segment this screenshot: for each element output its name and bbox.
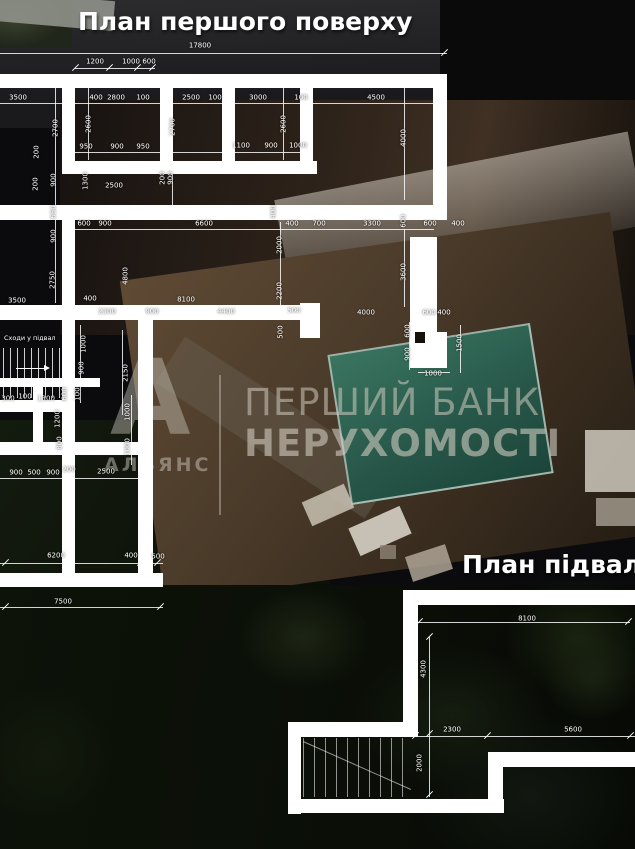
wall-segment: [410, 237, 437, 332]
sofa-photo: [596, 498, 635, 526]
dimension-label: 1100: [232, 143, 250, 150]
wall-segment: [300, 74, 313, 174]
dimension-label: 100: [18, 394, 31, 401]
dimension-label: 4000: [357, 310, 375, 317]
dimension-label: 800: [57, 436, 64, 449]
wall-segment: [433, 74, 447, 220]
dimension-label: 400: [83, 296, 96, 303]
wall-segment: [290, 722, 418, 737]
dim-line: [75, 152, 300, 153]
dimension-label: 2200: [277, 282, 284, 300]
dimension-label: 1200: [86, 59, 104, 66]
dimension-label: 200: [33, 177, 40, 190]
dimension-label: 2500: [182, 95, 200, 102]
dimension-label: 900: [145, 309, 158, 316]
dimension-label: 4500: [367, 95, 385, 102]
dimension-label: 950: [136, 144, 149, 151]
dim-line: [172, 88, 173, 205]
dim-line: [413, 736, 635, 737]
wall-segment: [300, 205, 437, 220]
dimension-label: 950: [79, 144, 92, 151]
dimension-label: 900: [110, 144, 123, 151]
dimension-label: 2600: [281, 115, 288, 133]
wall-segment: [222, 74, 235, 164]
dimension-label: 3500: [8, 298, 26, 305]
watermark-line1: ПЕРШИЙ БАНК: [244, 384, 540, 421]
dimension-label: 2750: [50, 271, 57, 289]
dimension-label: 400: [89, 95, 102, 102]
dim-line: [429, 637, 430, 737]
dimension-label: 900: [168, 171, 175, 184]
stairs-label: Сходи у підвал: [4, 334, 56, 342]
tree-photo: [540, 610, 635, 740]
dimension-label: 1000: [424, 371, 442, 378]
dimension-label: 1200: [55, 410, 62, 428]
dimension-label: 2500: [97, 469, 115, 476]
dim-line: [0, 478, 143, 479]
dimension-label: 500: [151, 554, 164, 561]
dimension-label: 2700: [53, 119, 60, 137]
wall-segment: [403, 590, 418, 737]
wall-segment: [0, 305, 320, 320]
wall-segment: [403, 590, 635, 605]
dimension-label: 3500: [9, 95, 27, 102]
dimension-label: 400: [437, 310, 450, 317]
bush-photo: [0, 640, 150, 849]
dimension-label: 8100: [518, 616, 536, 623]
dimension-label: 2000: [417, 754, 424, 772]
dimension-label: 17800: [189, 43, 211, 50]
dimension-label: 5600: [564, 727, 582, 734]
dimension-label: 100: [208, 95, 221, 102]
dimension-label: 2000: [277, 236, 284, 254]
basement-title: План підвалу: [462, 552, 635, 577]
dimension-label: 2700: [170, 118, 177, 136]
first-floor-title: План першого поверху: [78, 9, 412, 34]
dim-line: [429, 737, 430, 797]
dimension-label: 7500: [54, 599, 72, 606]
dimension-label: 4400: [217, 309, 235, 316]
dimension-label: 600: [423, 221, 436, 228]
dimension-label: 600: [401, 214, 408, 227]
dimension-label: 1500: [457, 334, 464, 352]
dimension-label: 1300: [37, 396, 55, 403]
dimension-label: 400: [124, 553, 137, 560]
dimension-label: 1000: [125, 438, 132, 456]
sofa-photo: [585, 430, 635, 492]
dimension-label: 4000: [401, 129, 408, 147]
wall-segment: [0, 573, 163, 587]
wall-segment: [0, 205, 310, 220]
dimension-label: 100: [136, 95, 149, 102]
dimension-label: 8100: [177, 297, 195, 304]
dimension-label: 3300: [363, 221, 381, 228]
dimension-label: 4800: [123, 267, 130, 285]
dimension-label: 3000: [249, 95, 267, 102]
dimension-label: 900: [51, 229, 58, 242]
wall-segment: [288, 799, 504, 813]
dimension-label: 200: [160, 171, 167, 184]
dimension-label: 2600: [86, 115, 93, 133]
dimension-label: 600: [405, 324, 412, 337]
dimension-label: 1000: [122, 59, 140, 66]
wall-segment: [300, 303, 320, 338]
dimension-label: 6200: [47, 553, 65, 560]
wall-segment: [488, 752, 635, 767]
dimension-label: 400: [271, 205, 278, 218]
dim-line: [0, 53, 447, 54]
dimension-label: 6600: [195, 221, 213, 228]
watermark-divider: [219, 375, 221, 515]
dim-line: [0, 607, 163, 608]
dimension-label: 1000: [125, 403, 132, 421]
dimension-label: 500: [278, 325, 285, 338]
dimension-label: 400: [285, 221, 298, 228]
wall-segment: [62, 220, 75, 318]
dimension-label: 600: [422, 310, 435, 317]
dimension-label: 900: [79, 361, 86, 374]
dimension-label: 300: [1, 396, 14, 403]
dimension-label: 1300: [83, 172, 90, 190]
dimension-label: 600: [62, 387, 69, 400]
dimension-label: 500: [287, 308, 300, 315]
dimension-label: 900: [98, 221, 111, 228]
dimension-label: 2300: [443, 727, 461, 734]
dim-line: [0, 103, 434, 104]
dimension-label: 900: [9, 470, 22, 477]
dimension-label: 2800: [107, 95, 125, 102]
stairs-hatch: [3, 348, 61, 398]
dimension-label: 1000: [289, 143, 307, 150]
dimension-label: 650: [51, 205, 58, 218]
dimension-label: 3600: [401, 263, 408, 281]
wall-segment: [62, 74, 75, 174]
chimney-notch: [415, 332, 425, 343]
dimension-label: 600: [77, 221, 90, 228]
dim-line: [62, 229, 434, 230]
real-estate-floor-plan-image: А АЛЬЯНС ПЕРШИЙ БАНК НЕРУХОМОСТІ Сходи у…: [0, 0, 635, 849]
dimension-label: 900: [264, 143, 277, 150]
dimension-label: 200: [34, 145, 41, 158]
dimension-label: 2300: [98, 309, 116, 316]
dimension-label: 2150: [123, 364, 130, 382]
dimension-label: 700: [312, 221, 325, 228]
dimension-label: 200: [62, 467, 75, 474]
dimension-label: 600: [142, 59, 155, 66]
watermark-logo-text: АЛЬЯНС: [104, 456, 211, 475]
dimension-label: 1000: [81, 335, 88, 353]
stairs-arrow: [16, 368, 44, 369]
dimension-label: 500: [27, 470, 40, 477]
dim-line: [75, 68, 155, 69]
dimension-label: 900: [51, 173, 58, 186]
dimension-label: 2500: [105, 183, 123, 190]
dimension-label: 400: [451, 221, 464, 228]
dimension-label: 100: [75, 387, 82, 400]
stairs-arrow-head: [44, 365, 50, 371]
dimension-label: 900: [405, 347, 412, 360]
watermark-line2: НЕРУХОМОСТІ: [244, 425, 561, 462]
dimension-label: 100: [294, 95, 307, 102]
dimension-label: 900: [46, 470, 59, 477]
wall-segment: [62, 161, 317, 174]
dimension-label: 4300: [421, 660, 428, 678]
